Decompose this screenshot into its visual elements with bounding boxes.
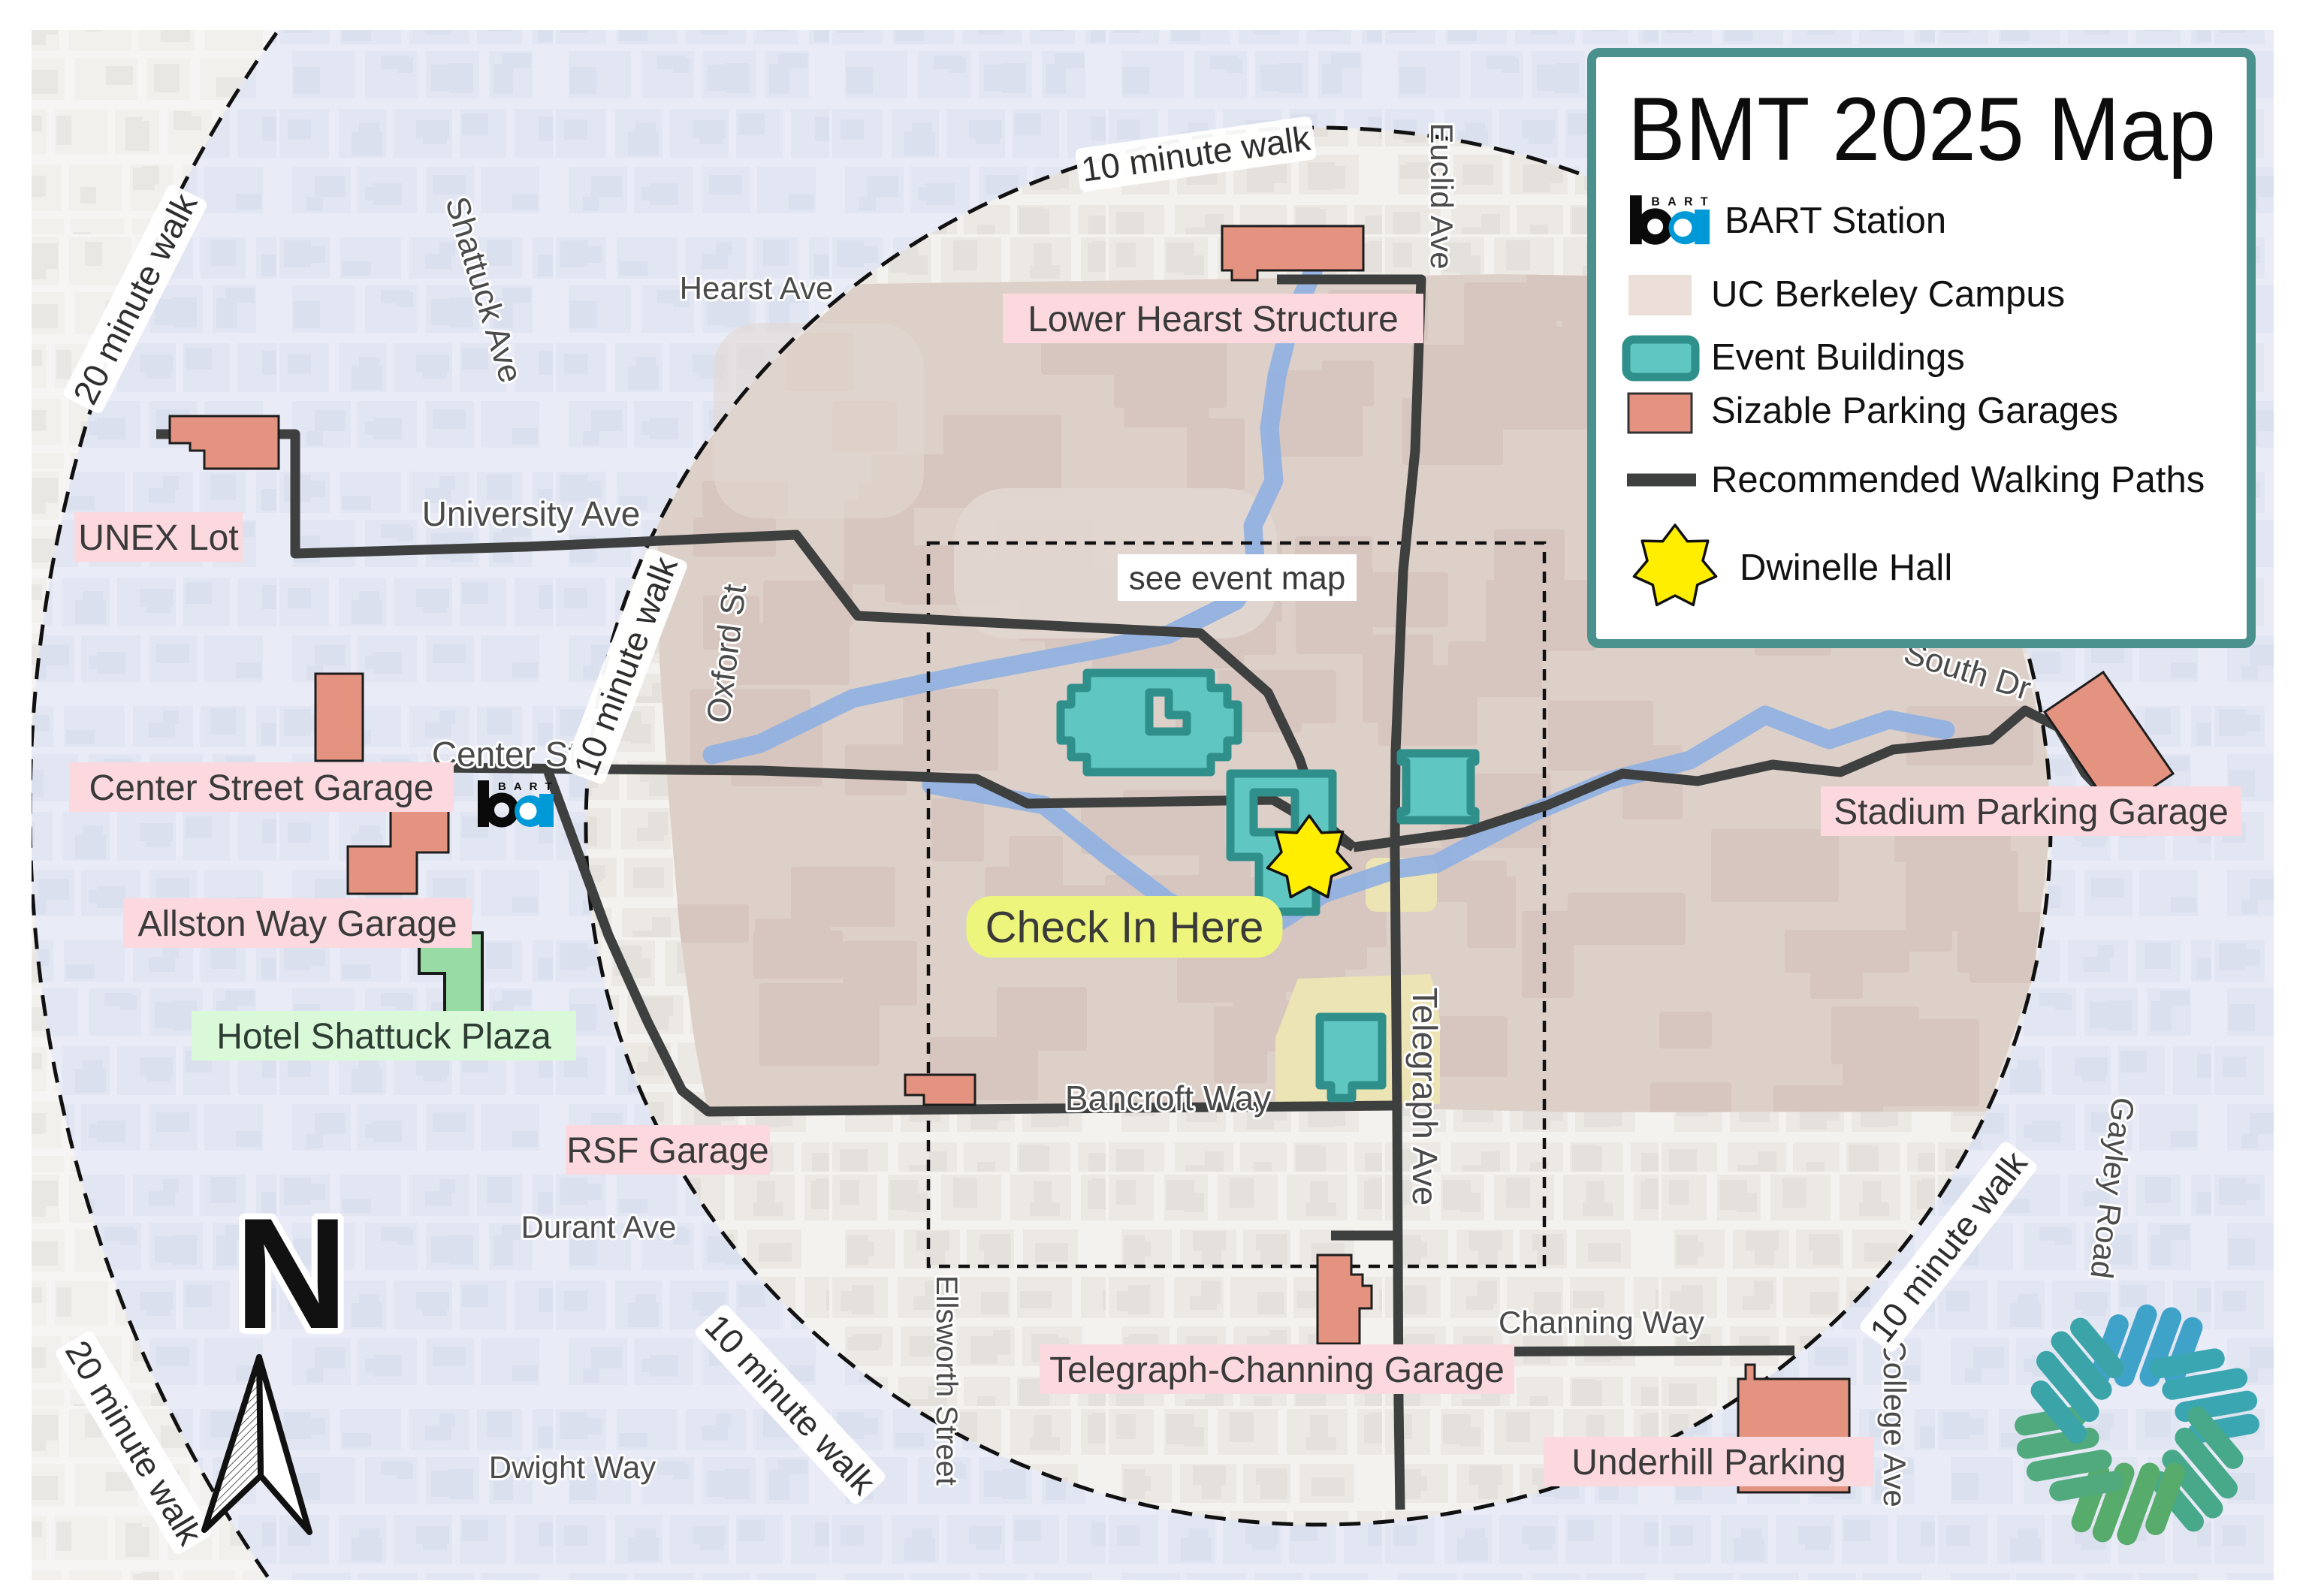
svg-text:Telegraph-Channing Garage: Telegraph-Channing Garage (1049, 1350, 1505, 1390)
svg-text:Telegraph Ave: Telegraph Ave (1405, 988, 1444, 1206)
svg-text:Sizable Parking Garages: Sizable Parking Garages (1711, 391, 2118, 431)
svg-text:Stadium Parking Garage: Stadium Parking Garage (1834, 792, 2229, 832)
svg-text:BART: BART (1651, 196, 1716, 209)
svg-text:Recommended Walking Paths: Recommended Walking Paths (1711, 460, 2205, 500)
svg-text:Underhill Parking: Underhill Parking (1571, 1443, 1846, 1483)
svg-text:UC Berkeley Campus: UC Berkeley Campus (1711, 274, 2065, 315)
svg-text:BMT 2025 Map: BMT 2025 Map (1628, 79, 2216, 180)
svg-text:UNEX Lot: UNEX Lot (78, 518, 238, 558)
svg-text:Channing Way: Channing Way (1499, 1305, 1704, 1340)
svg-text:Durant Ave: Durant Ave (521, 1209, 676, 1245)
svg-text:Euclid Ave: Euclid Ave (1424, 122, 1459, 269)
svg-text:Allston Way Garage: Allston Way Garage (137, 904, 457, 944)
svg-text:N: N (234, 1185, 349, 1362)
svg-text:Center St: Center St (432, 735, 578, 774)
svg-text:Event Buildings: Event Buildings (1711, 337, 1965, 378)
svg-text:see event map: see event map (1129, 560, 1346, 596)
svg-text:Hotel Shattuck Plaza: Hotel Shattuck Plaza (216, 1017, 551, 1057)
svg-text:College Ave: College Ave (1877, 1339, 1912, 1507)
svg-text:Dwight Way: Dwight Way (489, 1450, 656, 1485)
svg-text:BART: BART (498, 780, 560, 793)
svg-text:Dwinelle Hall: Dwinelle Hall (1740, 548, 1952, 588)
svg-text:Lower Hearst Structure: Lower Hearst Structure (1028, 300, 1399, 339)
svg-text:BART Station: BART Station (1725, 201, 1946, 241)
svg-text:Ellsworth Street: Ellsworth Street (930, 1275, 963, 1486)
svg-text:Bancroft Way: Bancroft Way (1065, 1079, 1271, 1118)
svg-text:Check In Here: Check In Here (985, 903, 1264, 952)
svg-text:RSF Garage: RSF Garage (566, 1131, 768, 1171)
svg-text:Hearst Ave: Hearst Ave (680, 270, 834, 306)
svg-text:Center Street Garage: Center Street Garage (89, 768, 434, 808)
svg-text:University Ave: University Ave (422, 494, 641, 533)
